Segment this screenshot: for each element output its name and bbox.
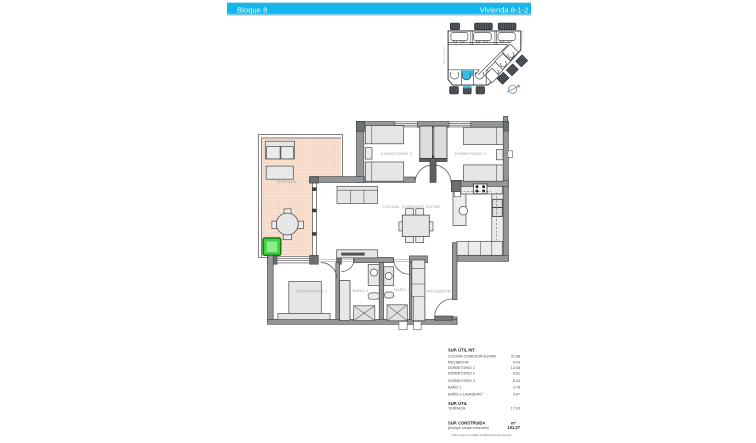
svg-text:SUP. ÚTIL INT.: SUP. ÚTIL INT.	[448, 348, 476, 353]
svg-text:Vivienda 8-1-2: Vivienda 8-1-2	[480, 5, 529, 14]
svg-text:8.33: 8.33	[513, 379, 520, 383]
svg-text:Bloque 8: Bloque 8	[237, 5, 267, 14]
svg-text:AVDA. BLOQUE: AVDA. BLOQUE	[443, 46, 446, 64]
svg-text:4.24: 4.24	[513, 361, 520, 365]
svg-text:SUP. ÚTIL: SUP. ÚTIL	[448, 401, 468, 406]
svg-text:BAÑO 2-LAVADERO: BAÑO 2-LAVADERO	[448, 392, 482, 397]
svg-text:DORMITORIO 2: DORMITORIO 2	[448, 372, 475, 376]
svg-text:31.88: 31.88	[511, 354, 520, 358]
svg-text:SUP. CONSTRUIDA: SUP. CONSTRUIDA	[448, 420, 485, 425]
svg-text:3.78: 3.78	[513, 386, 520, 390]
svg-text:8.61: 8.61	[513, 372, 520, 376]
svg-text:COCINA, COMEDOR, ESTAR: COCINA, COMEDOR, ESTAR	[383, 204, 441, 209]
svg-text:17.93: 17.93	[511, 406, 520, 410]
svg-text:RECIBIDOR: RECIBIDOR	[427, 289, 451, 294]
svg-text:C/ PEATONAL: C/ PEATONAL	[521, 28, 524, 44]
svg-text:101.37: 101.37	[507, 425, 520, 430]
svg-text:BAÑO 1: BAÑO 1	[448, 385, 462, 390]
svg-text:RECIBIDOR: RECIBIDOR	[448, 361, 469, 365]
svg-text:Plano sujeto a posibles modifi: Plano sujeto a posibles modificaciones d…	[453, 433, 512, 437]
svg-text:TERRAZA: TERRAZA	[448, 406, 466, 410]
svg-text:COCINA-COMEDOR-ESTAR: COCINA-COMEDOR-ESTAR	[448, 354, 496, 358]
svg-text:13.08: 13.08	[511, 366, 520, 370]
svg-text:BAÑO 2: BAÑO 2	[394, 287, 410, 292]
svg-text:DORMITORIO 1: DORMITORIO 1	[296, 288, 327, 293]
svg-text:(incluye zonas comunes): (incluye zonas comunes)	[448, 426, 489, 430]
svg-text:BAÑO 1: BAÑO 1	[353, 288, 369, 293]
svg-text:DORMITORIO 1: DORMITORIO 1	[448, 366, 475, 370]
svg-text:TERRAZA: TERRAZA	[276, 179, 296, 184]
svg-text:DORMITORIO 2: DORMITORIO 2	[455, 151, 486, 156]
svg-text:DORMITORIO 3: DORMITORIO 3	[381, 151, 412, 156]
svg-text:DORMITORIO 3: DORMITORIO 3	[448, 379, 475, 383]
svg-text:4.97: 4.97	[513, 393, 520, 397]
